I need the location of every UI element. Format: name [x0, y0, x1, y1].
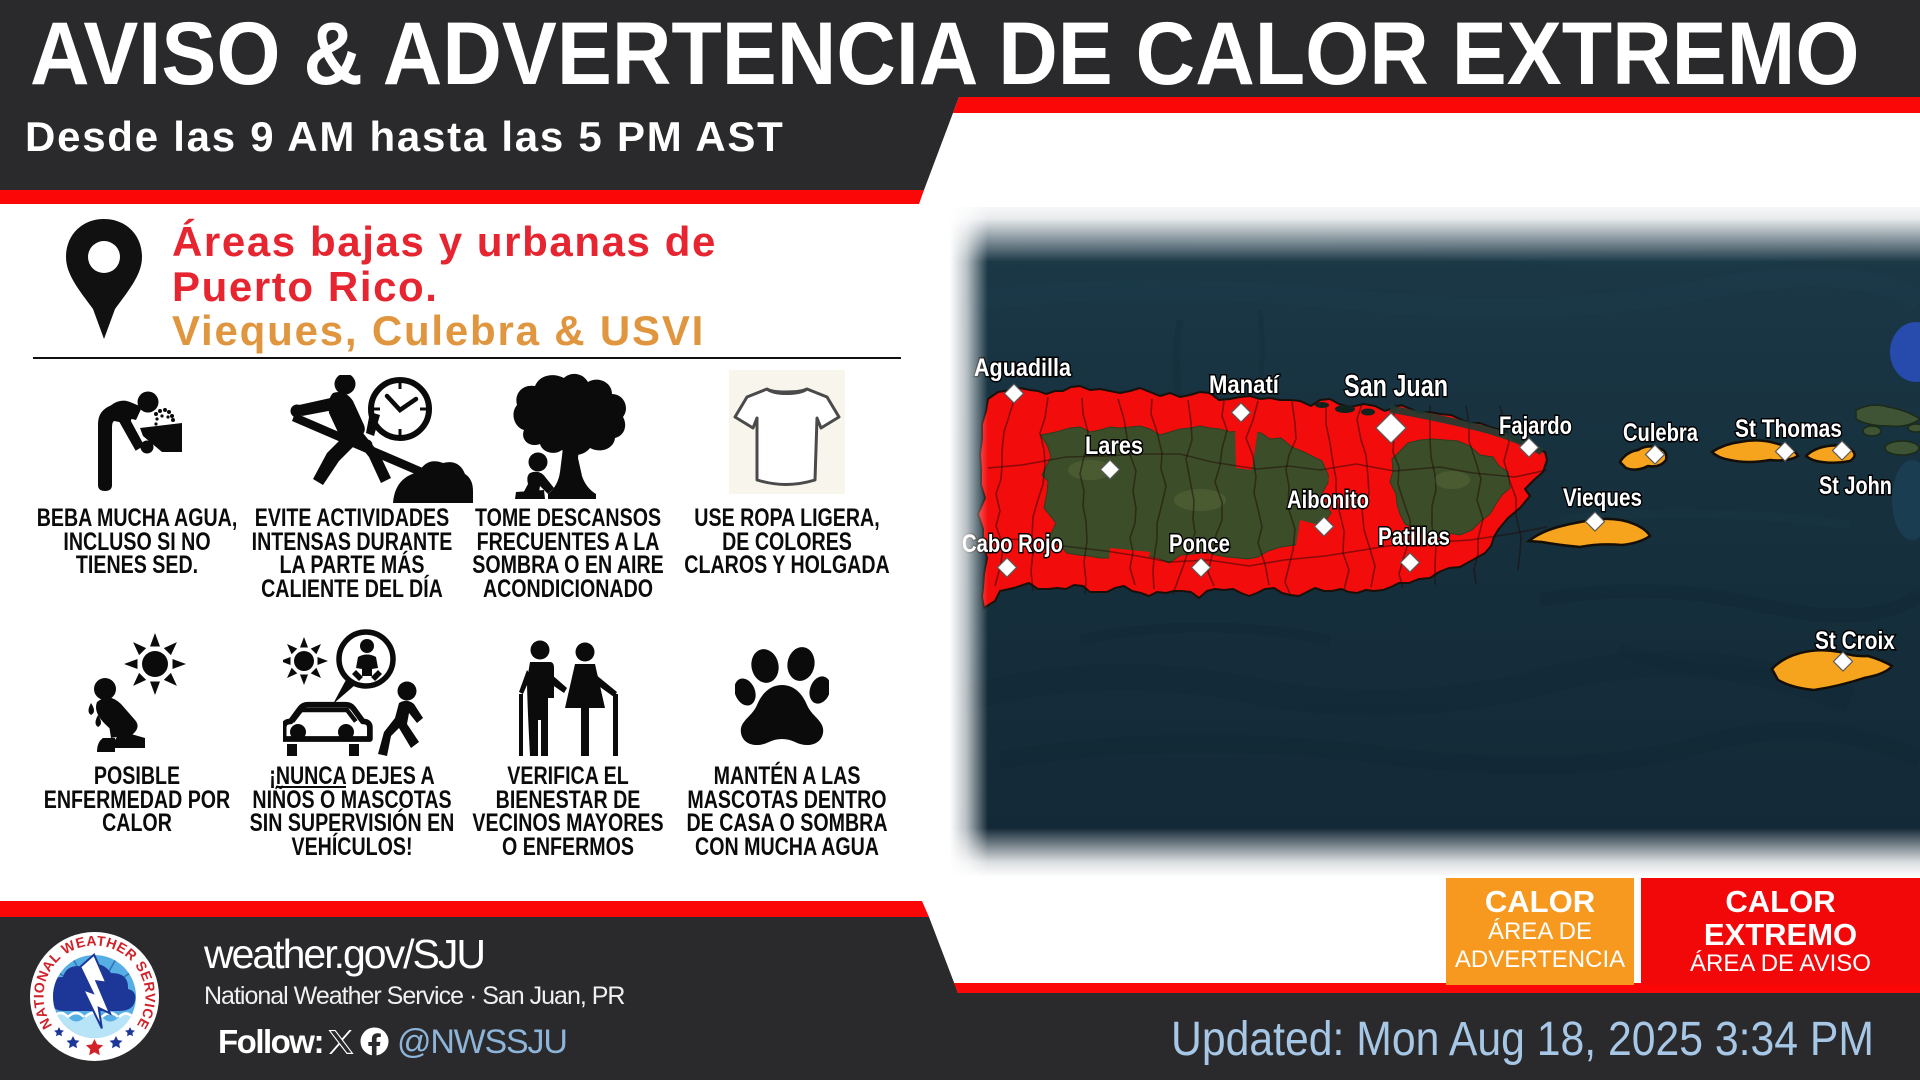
svg-text:St John: St John — [1819, 472, 1892, 500]
svg-text:St Croix: St Croix — [1815, 626, 1895, 654]
svg-text:Manatí: Manatí — [1209, 371, 1280, 399]
svg-text:Vieques: Vieques — [1563, 483, 1642, 511]
svg-text:Culebra: Culebra — [1623, 418, 1698, 447]
svg-text:St Thomas: St Thomas — [1735, 414, 1842, 442]
svg-text:San Juan: San Juan — [1344, 368, 1448, 403]
svg-text:Aguadilla: Aguadilla — [974, 354, 1072, 382]
svg-text:Lares: Lares — [1085, 432, 1143, 460]
svg-text:Aibonito: Aibonito — [1287, 485, 1369, 514]
svg-text:Ponce: Ponce — [1169, 529, 1230, 558]
svg-text:Patillas: Patillas — [1378, 522, 1450, 550]
svg-text:Fajardo: Fajardo — [1499, 411, 1572, 440]
